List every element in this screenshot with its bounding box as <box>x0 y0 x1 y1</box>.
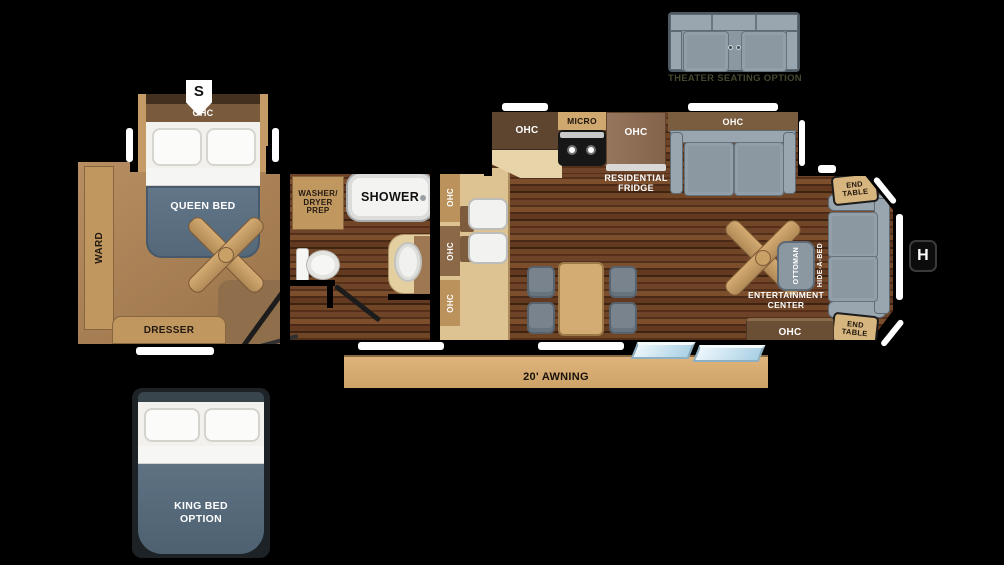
sofa-cushion <box>683 31 729 72</box>
shower-label: SHOWER <box>361 190 419 204</box>
queen-bed-sheet-fold <box>146 168 260 188</box>
sofa-cushion <box>828 212 878 258</box>
burner-icon <box>586 145 596 155</box>
ohc-label: OHC <box>446 294 455 313</box>
ohc-label: OHC <box>723 117 744 127</box>
front-wall <box>64 150 78 358</box>
window <box>799 120 805 166</box>
sofa-back-seam <box>711 15 713 30</box>
top-wall-thick <box>266 146 492 174</box>
hitch-marker-letter: H <box>917 247 929 265</box>
dresser-label: DRESSER <box>144 325 194 336</box>
sofa-cushion <box>741 31 787 72</box>
kitchen-sink-basin <box>468 232 508 264</box>
ohc-label: OHC <box>607 127 665 138</box>
counter-ohc-bottom: OHC <box>440 280 460 326</box>
microwave: MICRO <box>558 112 606 130</box>
shower: SHOWER <box>346 172 434 222</box>
sofa-cushion <box>684 142 734 196</box>
sofa-cushion <box>734 142 784 196</box>
hitch-marker: H <box>909 240 937 272</box>
toilet-bowl <box>306 250 340 280</box>
king-bed-option: KING BED OPTION <box>132 388 270 558</box>
hide-a-bed-text: HIDE-A-BED <box>817 243 824 287</box>
king-bed-option-label: KING BED OPTION <box>138 500 264 525</box>
bedroom-divider-wall <box>280 166 290 352</box>
dinette-chair <box>527 302 555 334</box>
residential-fridge: OHC <box>606 112 666 168</box>
window <box>358 342 444 350</box>
dresser: DRESSER <box>112 316 226 344</box>
sofa-back <box>670 14 798 31</box>
bath-sink <box>394 242 422 282</box>
counter-ohc-middle: OHC <box>440 226 460 276</box>
entertainment-center-label: ENTERTAINMENT CENTER <box>740 291 832 311</box>
ottoman: OTTOMAN <box>777 241 815 291</box>
sofa-arm <box>670 132 683 194</box>
queen-bed-pillow <box>206 128 256 166</box>
king-bed-pillow <box>204 408 260 442</box>
theater-seating-option-label: THEATER SEATING OPTION <box>640 73 830 84</box>
micro-label: MICRO <box>567 116 597 126</box>
burner-icon <box>567 145 577 155</box>
wardrobe-label: WARD <box>94 232 105 264</box>
slide-sofa <box>670 130 796 196</box>
kitchen-ohc-cabinet: OHC <box>492 112 562 152</box>
entry-step <box>631 342 696 359</box>
ohc-label: OHC <box>446 188 455 207</box>
bath-wall <box>327 280 333 308</box>
cup-holder-icon <box>736 45 741 50</box>
kitchen-sink-basin <box>468 198 508 230</box>
king-bed-pillow <box>144 408 200 442</box>
sofa-back-seam <box>755 15 757 30</box>
awning-label: 20' AWNING <box>523 371 589 388</box>
window <box>502 103 548 111</box>
theater-seating-sofa <box>668 12 800 72</box>
fan-hub <box>218 247 234 263</box>
window <box>136 347 214 355</box>
window <box>538 342 624 350</box>
dinette-table <box>558 262 604 336</box>
king-bed-body: KING BED OPTION <box>138 464 264 554</box>
end-table-label: END TABLE <box>841 180 868 198</box>
kitchen-slide-left-wall <box>484 102 492 176</box>
counter-ohc-top: OHC <box>440 172 460 222</box>
queen-bed-pillow <box>152 128 202 166</box>
ohc-label: OHC <box>446 242 455 261</box>
fridge-trim <box>606 164 666 171</box>
window <box>126 128 133 162</box>
window <box>688 103 778 111</box>
ottoman-label: OTTOMAN <box>793 247 800 284</box>
entry-step <box>693 345 766 362</box>
sofa-arm <box>783 132 796 194</box>
slide-marker-letter: S <box>194 83 204 100</box>
end-table-label: END TABLE <box>841 320 868 338</box>
dinette-chair <box>609 302 637 334</box>
ohc-label: OHC <box>515 125 538 136</box>
ohc-label: OHC <box>778 327 801 338</box>
slide-trim-left <box>138 94 146 172</box>
cooktop-trim <box>560 132 604 138</box>
sofa-arm <box>786 31 798 70</box>
counter-wall <box>430 168 440 345</box>
window <box>818 165 836 173</box>
sofa-ohc-cabinet: OHC <box>668 112 798 132</box>
hide-a-bed-sofa <box>826 192 892 320</box>
sofa-arm <box>670 31 682 70</box>
fan-hub <box>755 250 771 266</box>
window <box>272 128 279 162</box>
floor-plan: OHC QUEEN BED WARD DRESSER WASHER/ DRYER… <box>0 0 1004 565</box>
cup-holder-icon <box>728 45 733 50</box>
sofa-cushion <box>828 256 878 302</box>
dinette-chair <box>527 266 555 298</box>
bedroom-ceiling-fan <box>177 206 273 302</box>
washer-dryer-prep: WASHER/ DRYER PREP <box>292 176 344 230</box>
shower-head-icon <box>420 195 426 201</box>
wardrobe: WARD <box>84 166 114 330</box>
cooktop <box>558 130 606 166</box>
washer-dryer-prep-label: WASHER/ DRYER PREP <box>298 190 337 217</box>
dinette-chair <box>609 266 637 298</box>
king-bed-sheet-fold <box>138 446 264 466</box>
window <box>896 214 903 300</box>
